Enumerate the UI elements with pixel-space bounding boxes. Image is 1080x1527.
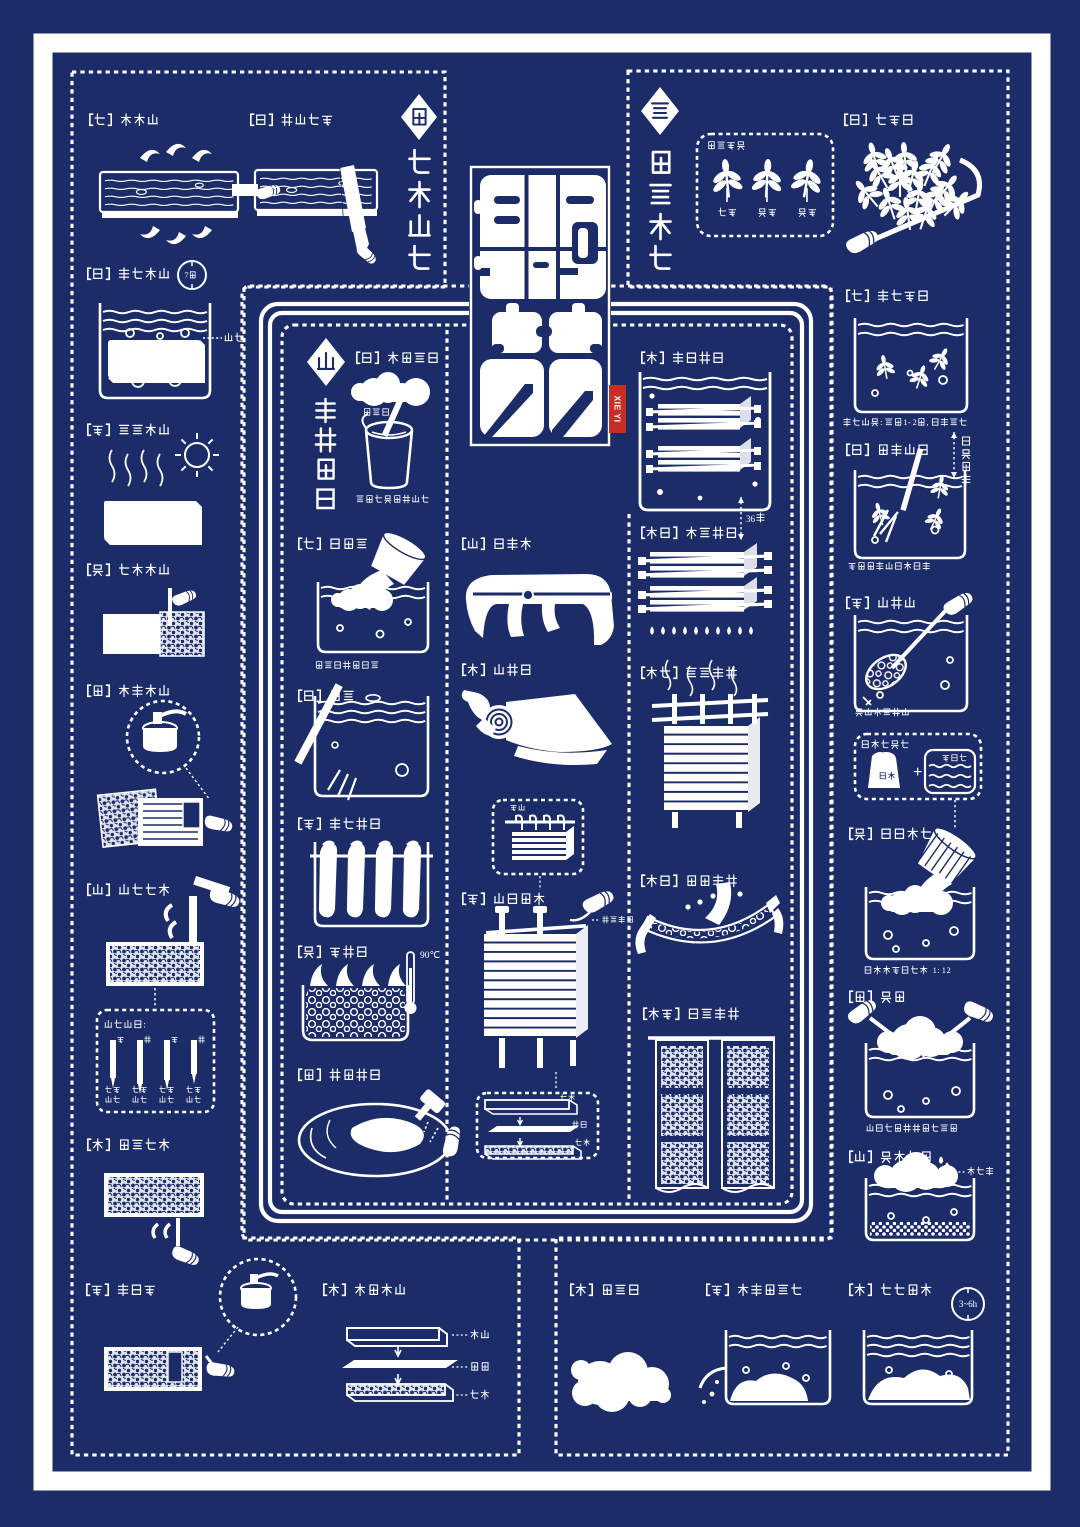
- svg-text:3~6h: 3~6h: [959, 1299, 978, 1309]
- svg-text::: :: [880, 418, 882, 427]
- svg-text:+: +: [913, 764, 922, 781]
- svg-text:90℃: 90℃: [420, 951, 441, 961]
- svg-text:1: 1: [903, 418, 907, 427]
- svg-text:1: 1: [942, 966, 946, 975]
- svg-text:7: 7: [184, 271, 188, 280]
- svg-text:2: 2: [913, 418, 917, 427]
- svg-text:2: 2: [947, 966, 951, 975]
- svg-text::: :: [143, 1020, 145, 1030]
- svg-text:1: 1: [933, 966, 937, 975]
- svg-text::: :: [937, 966, 939, 975]
- svg-text:XIE YI: XIE YI: [613, 396, 623, 423]
- svg-text:36: 36: [746, 514, 756, 524]
- svg-text:,: ,: [927, 418, 929, 427]
- svg-text:-: -: [908, 418, 911, 427]
